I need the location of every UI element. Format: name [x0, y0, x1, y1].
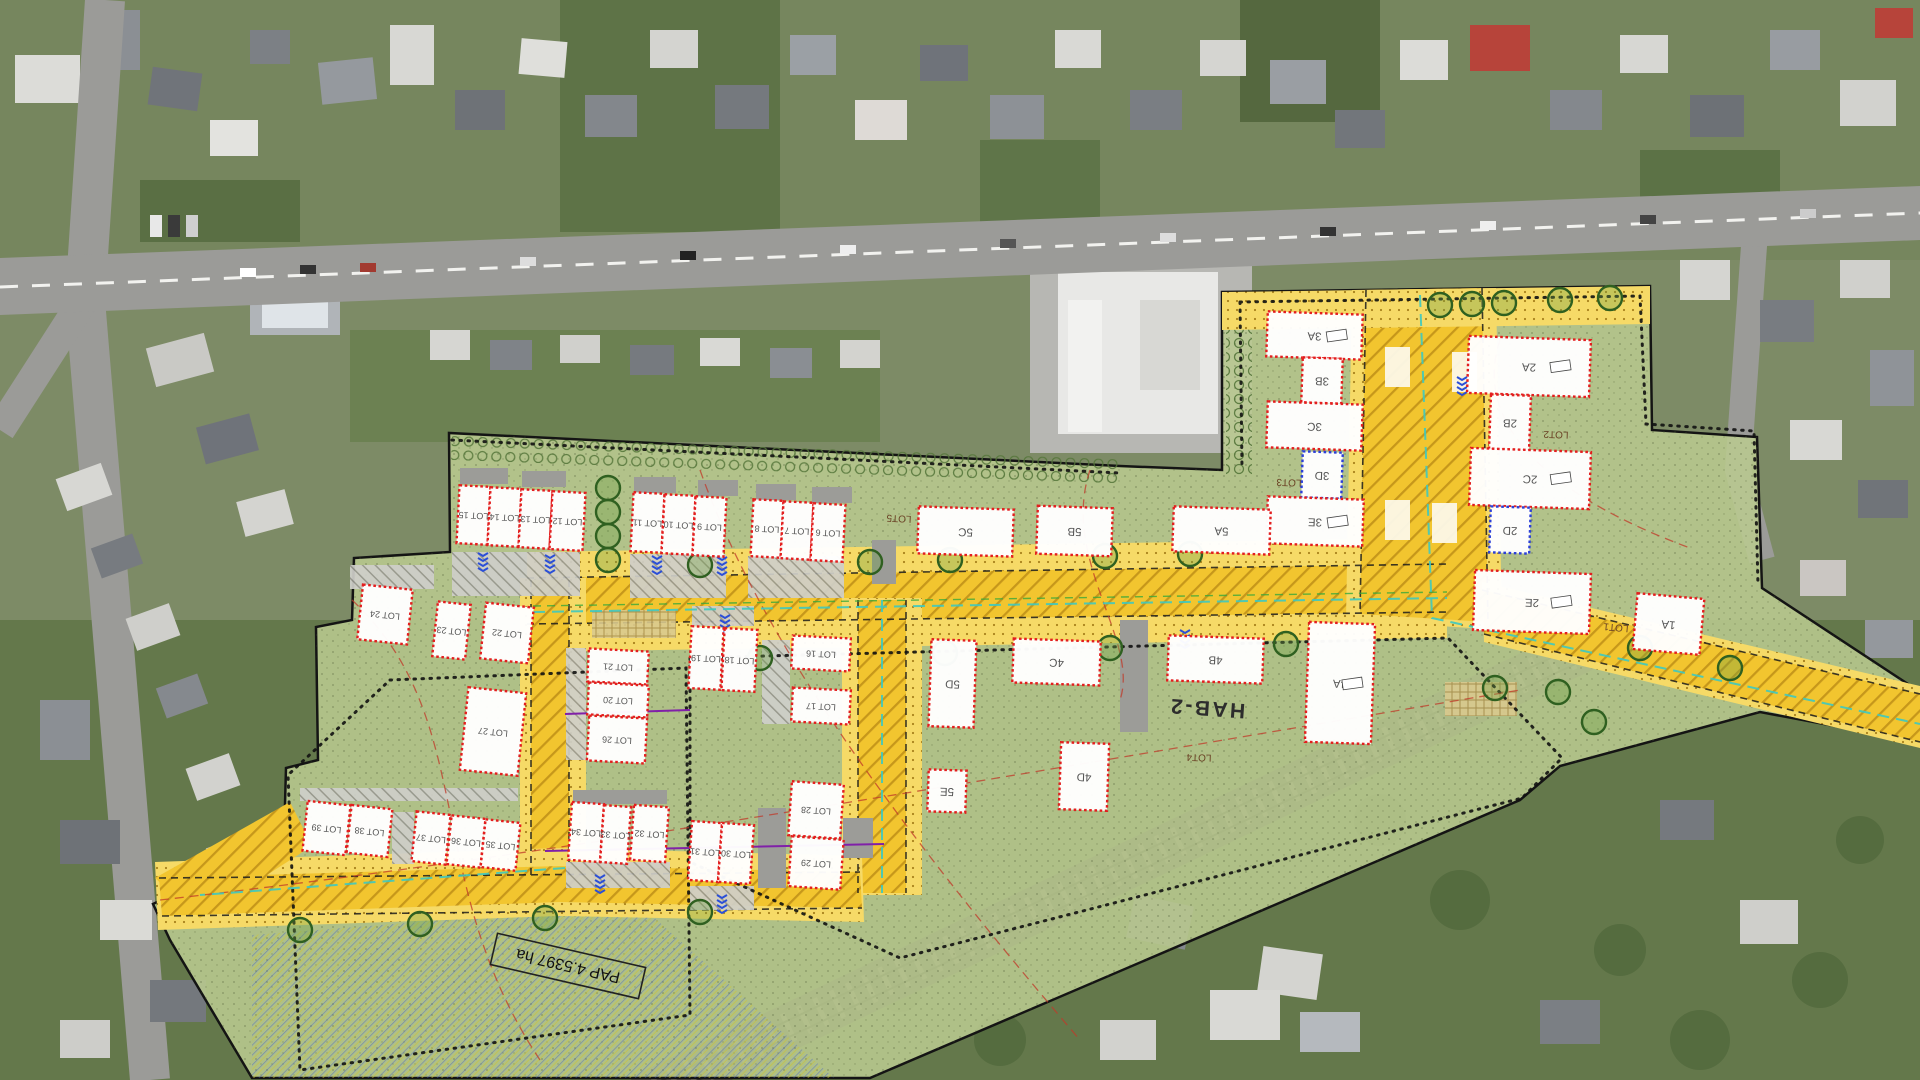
lot-lot-36: LOT 36 — [447, 815, 486, 867]
lot-lot-10: LOT 10 — [661, 494, 695, 555]
lot-label: LOT 13 — [520, 514, 550, 526]
lot-lot-26: LOT 26 — [587, 716, 647, 764]
lot-lot-38: LOT 38 — [347, 805, 393, 857]
building-label: 2B — [1502, 416, 1517, 428]
lot-lot-23: LOT 23 — [432, 601, 471, 659]
lot-label: LOT 31 — [690, 846, 720, 858]
lot-lot-9: LOT 9 — [692, 496, 726, 557]
lot-lot-22: LOT 22 — [480, 603, 534, 664]
lot-label: LOT 33 — [600, 829, 630, 841]
building-label: 4D — [1076, 770, 1091, 783]
lot-lot-33: LOT 33 — [600, 805, 631, 864]
lot-lot-15: LOT 15 — [457, 485, 491, 545]
lot-lot-39: LOT 39 — [303, 801, 351, 855]
building-label: 5A — [1214, 524, 1229, 536]
building-5e: 5E — [927, 769, 966, 812]
lot-lot-30: LOT 30 — [718, 823, 754, 884]
building-label: 2E — [1524, 596, 1539, 608]
lot-label: LOT 26 — [602, 734, 632, 746]
lot-lot-24: LOT 24 — [357, 585, 412, 645]
building-2b: 2B — [1489, 394, 1531, 450]
building-label: 1A — [1661, 617, 1676, 630]
building-5a: 5A — [1172, 506, 1271, 554]
building-2d: 2D — [1489, 506, 1531, 553]
lot-lot-28: LOT 28 — [788, 781, 844, 838]
building-3d: 3D — [1301, 451, 1343, 498]
building-label: 5B — [1067, 525, 1082, 537]
building-4d: 4D — [1059, 742, 1109, 811]
building-5c: 5C — [917, 506, 1014, 556]
lot-label: LOT 21 — [603, 661, 633, 673]
zone-label-lot2: LOT2 — [1543, 428, 1569, 440]
zone-label-lot5: LOT5 — [886, 512, 912, 524]
lot-label: LOT 12 — [552, 516, 582, 528]
lot-label: LOT 15 — [458, 510, 488, 522]
lot-label: LOT 34 — [571, 827, 601, 839]
lot-lot-29: LOT 29 — [788, 836, 843, 890]
lot-lot-12: LOT 12 — [550, 491, 586, 551]
lot-lot-35: LOT 35 — [481, 819, 521, 870]
building-label: 3E — [1307, 515, 1322, 527]
building-1a: 1A — [1633, 593, 1705, 655]
building-4c: 4C — [1012, 638, 1100, 685]
lot-label: LOT 18 — [724, 655, 754, 667]
lot-label: LOT 14 — [489, 512, 519, 524]
building-label: 2D — [1502, 524, 1517, 537]
lot-lot-7: LOT 7 — [781, 501, 814, 559]
building-4b: 4B — [1167, 635, 1264, 683]
lot-lot-17: LOT 17 — [791, 688, 851, 725]
lot-lot-19: LOT 19 — [688, 626, 723, 690]
lot-lot-13: LOT 13 — [519, 489, 553, 549]
lot-lot-16: LOT 16 — [791, 636, 851, 672]
lot-label: LOT 7 — [784, 525, 809, 536]
lot-label: LOT 10 — [663, 519, 693, 531]
lot-lot-27: LOT 27 — [460, 687, 526, 776]
site-plan-canvas: LOT 15LOT 14LOT 13LOT 12LOT 11LOT 10LOT … — [0, 0, 1920, 1080]
building-2a: 2A — [1467, 336, 1591, 397]
building-3e: 3E — [1266, 496, 1364, 546]
lot-lot-20: LOT 20 — [587, 682, 649, 717]
lot-label: LOT 11 — [633, 517, 663, 529]
zone-label-lot1: LOT1 — [1603, 620, 1629, 633]
building-label: 4B — [1208, 653, 1223, 665]
building-2e: 2E — [1473, 570, 1591, 634]
lot-label: LOT 19 — [691, 653, 721, 665]
building-label: 3B — [1314, 374, 1329, 386]
lot-label: LOT 32 — [634, 828, 664, 840]
lot-lot-14: LOT 14 — [488, 487, 522, 547]
building-label: 5D — [945, 677, 960, 690]
lot-lot-37: LOT 37 — [411, 811, 450, 864]
building-3a: 3A — [1266, 311, 1363, 359]
building-label: 2C — [1522, 472, 1537, 485]
lot-label: LOT 16 — [806, 648, 836, 660]
building-3b: 3B — [1301, 357, 1343, 403]
building-label: 5C — [958, 525, 973, 538]
lot-lot-32: LOT 32 — [630, 805, 669, 862]
aerial-masterplan-screenshot: LOT 15LOT 14LOT 13LOT 12LOT 11LOT 10LOT … — [0, 0, 1920, 1080]
building-label: 3D — [1314, 469, 1329, 482]
building-label: 4C — [1049, 656, 1064, 669]
lot-lot-21: LOT 21 — [587, 648, 649, 684]
building-label: 3A — [1307, 329, 1322, 341]
lot-label: LOT 30 — [721, 848, 751, 860]
lot-label: LOT 9 — [697, 521, 722, 532]
lot-label: LOT 17 — [806, 701, 836, 713]
lot-lot-34: LOT 34 — [568, 802, 604, 862]
lot-lot-31: LOT 31 — [688, 821, 722, 882]
building-3c: 3C — [1266, 401, 1363, 450]
lot-lot-8: LOT 8 — [751, 499, 784, 557]
building-label: 5E — [939, 785, 954, 797]
lot-lot-11: LOT 11 — [630, 492, 664, 553]
building-5d: 5D — [928, 639, 976, 728]
lot-label: LOT 20 — [603, 695, 633, 707]
building-label: 2A — [1521, 360, 1536, 372]
building-5b: 5B — [1036, 506, 1113, 557]
building-label: 3C — [1307, 420, 1322, 433]
zone-label-lot4: LOT4 — [1186, 751, 1212, 763]
zone-label-lot3: LOT3 — [1276, 476, 1302, 488]
lot-lot-18: LOT 18 — [721, 628, 757, 692]
lot-label: LOT 8 — [754, 523, 779, 534]
building-2c: 2C — [1469, 448, 1591, 509]
building-4a: 4A — [1305, 622, 1375, 744]
lot-lot-6: LOT 6 — [811, 503, 846, 562]
lot-label: LOT 6 — [815, 527, 840, 538]
lot-label: LOT 29 — [801, 858, 831, 870]
lot-label: LOT 28 — [801, 805, 831, 817]
